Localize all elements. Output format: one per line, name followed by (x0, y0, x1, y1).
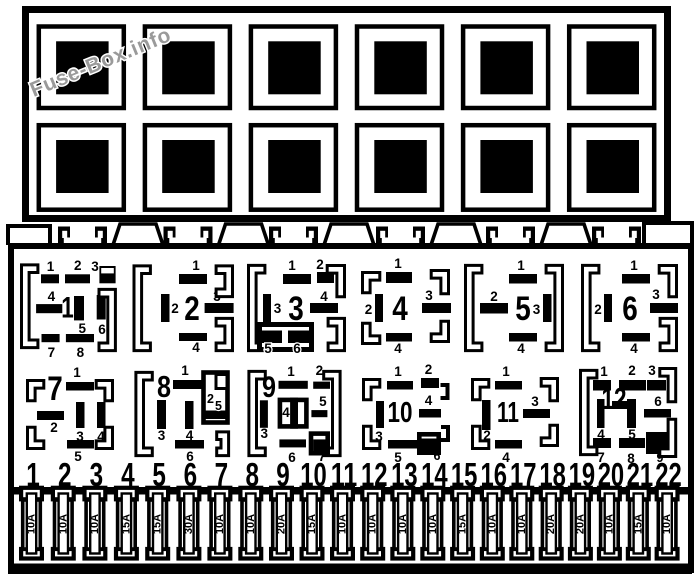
svg-text:15A: 15A (306, 514, 318, 534)
svg-text:10: 10 (388, 397, 413, 429)
svg-text:2: 2 (483, 428, 491, 443)
svg-text:2: 2 (184, 290, 200, 328)
svg-text:20A: 20A (545, 514, 557, 534)
svg-text:3: 3 (425, 288, 433, 303)
svg-text:2: 2 (594, 302, 602, 317)
svg-text:10A: 10A (57, 514, 69, 534)
svg-text:2: 2 (490, 289, 498, 304)
svg-text:1: 1 (61, 292, 74, 325)
svg-text:5: 5 (264, 341, 272, 356)
svg-text:1: 1 (394, 364, 402, 379)
svg-text:4: 4 (192, 340, 200, 355)
svg-text:8: 8 (77, 345, 85, 360)
svg-text:1: 1 (517, 258, 525, 273)
svg-text:4: 4 (394, 341, 402, 356)
svg-text:1: 1 (600, 364, 608, 379)
svg-text:1: 1 (192, 258, 200, 273)
svg-text:1: 1 (502, 364, 510, 379)
svg-text:1: 1 (287, 364, 295, 379)
svg-text:2: 2 (425, 362, 433, 377)
svg-text:9: 9 (262, 371, 276, 404)
svg-text:1: 1 (181, 363, 189, 378)
svg-text:2: 2 (50, 420, 58, 435)
svg-text:20A: 20A (574, 514, 586, 534)
svg-text:2: 2 (628, 363, 636, 378)
svg-text:4: 4 (282, 405, 290, 420)
svg-text:4: 4 (425, 393, 433, 408)
svg-text:11: 11 (497, 397, 519, 429)
svg-text:4: 4 (392, 290, 408, 328)
svg-text:10A: 10A (26, 514, 38, 534)
svg-text:15A: 15A (152, 514, 164, 534)
svg-text:15A: 15A (120, 514, 132, 534)
svg-text:4: 4 (630, 341, 638, 356)
svg-text:3: 3 (375, 429, 383, 444)
svg-text:5: 5 (319, 394, 327, 409)
svg-text:5: 5 (515, 290, 531, 328)
svg-text:10A: 10A (245, 514, 257, 534)
svg-text:5: 5 (74, 449, 82, 464)
svg-text:10A: 10A (486, 514, 498, 534)
svg-text:10A: 10A (89, 514, 101, 534)
svg-text:2: 2 (171, 301, 179, 316)
svg-text:3: 3 (531, 394, 539, 409)
svg-text:6: 6 (654, 394, 662, 409)
svg-text:1: 1 (394, 256, 402, 271)
svg-text:4: 4 (517, 341, 525, 356)
svg-text:10A: 10A (427, 514, 439, 534)
svg-text:10A: 10A (661, 514, 673, 534)
svg-text:7: 7 (47, 370, 63, 408)
svg-text:10A: 10A (337, 514, 349, 534)
svg-text:2: 2 (365, 302, 373, 317)
svg-text:8: 8 (157, 369, 171, 404)
svg-text:6: 6 (98, 322, 106, 337)
svg-text:6: 6 (622, 290, 638, 328)
svg-text:2: 2 (316, 363, 324, 378)
svg-text:4: 4 (48, 289, 56, 304)
svg-text:15A: 15A (632, 514, 644, 534)
svg-text:2: 2 (316, 257, 324, 272)
svg-text:2: 2 (74, 258, 82, 273)
svg-text:30A: 30A (183, 514, 195, 534)
svg-text:3: 3 (652, 287, 660, 302)
svg-text:3: 3 (158, 428, 166, 443)
svg-text:3: 3 (648, 363, 656, 378)
svg-text:5: 5 (215, 399, 222, 413)
svg-text:10A: 10A (603, 514, 615, 534)
svg-text:10A: 10A (367, 514, 379, 534)
svg-text:3: 3 (91, 259, 99, 274)
svg-text:6: 6 (293, 341, 301, 356)
svg-text:3: 3 (274, 301, 282, 316)
svg-text:1: 1 (47, 259, 55, 274)
svg-text:12: 12 (602, 381, 627, 416)
svg-text:4: 4 (97, 429, 105, 444)
svg-text:10A: 10A (516, 514, 528, 534)
svg-text:2: 2 (207, 392, 214, 406)
svg-text:3: 3 (533, 302, 541, 317)
svg-text:10A: 10A (214, 514, 226, 534)
svg-text:1: 1 (630, 258, 638, 273)
svg-text:4: 4 (320, 289, 328, 304)
svg-text:5: 5 (78, 321, 86, 336)
svg-text:1: 1 (288, 258, 296, 273)
svg-text:7: 7 (48, 345, 56, 360)
svg-text:20A: 20A (276, 514, 288, 534)
svg-text:3: 3 (261, 426, 269, 441)
svg-text:10A: 10A (397, 514, 409, 534)
svg-text:15A: 15A (457, 514, 469, 534)
svg-text:1: 1 (73, 365, 81, 380)
